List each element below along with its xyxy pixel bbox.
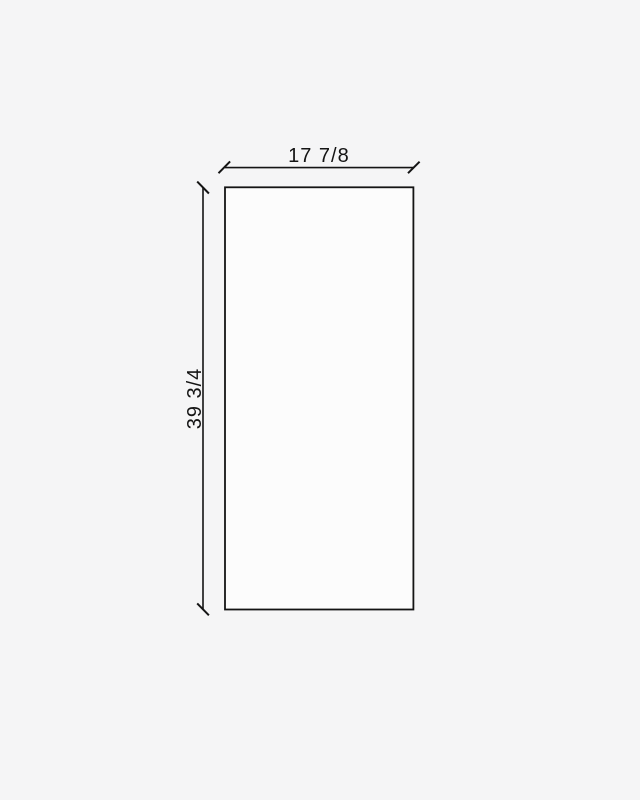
svg-text:39 3/4: 39 3/4: [184, 368, 206, 430]
svg-text:17 7/8: 17 7/8: [288, 145, 350, 167]
